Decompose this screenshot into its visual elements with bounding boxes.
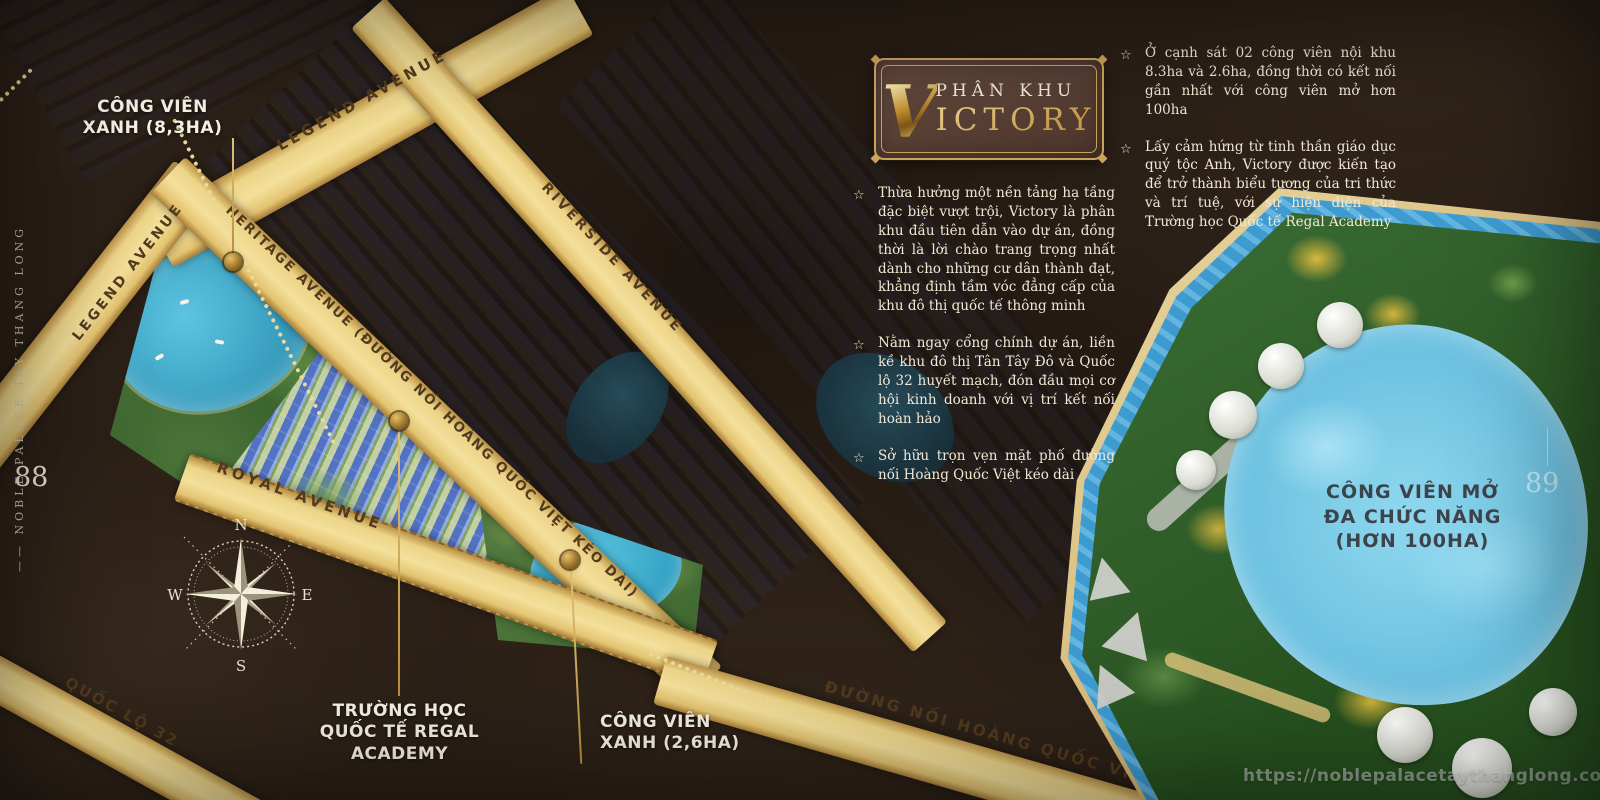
compass-west-label: W [167, 586, 183, 604]
page-number-left: 88 [14, 462, 48, 493]
victory-badge: V PHÂN KHU ICTORY [874, 58, 1104, 160]
map-marker-dot [390, 412, 408, 430]
bullet-item: ☆ Ở cạnh sát 02 công viên nội khu 8.3ha … [1120, 44, 1396, 120]
intro-bullet-list: ☆ Thừa hưởng một nền tảng hạ tầng đặc bi… [853, 184, 1115, 502]
open-park-area: CÔNG VIÊN MỞ ĐA CHỨC NĂNG (HƠN 100HA) [1055, 185, 1600, 800]
bullet-item: ☆ Thừa hưởng một nền tảng hạ tầng đặc bi… [853, 184, 1115, 316]
bullet-text: Sở hữu trọn vẹn mặt phố đường nối Hoàng … [878, 447, 1115, 485]
star-bullet-icon: ☆ [1120, 46, 1134, 120]
green-park-8-3-label: CÔNG VIÊN XANH (8,3HA) [70, 97, 235, 140]
badge-title-initial: V [882, 81, 938, 142]
bullet-item: ☆ Sở hữu trọn vẹn mặt phố đường nối Hoàn… [853, 447, 1115, 485]
bullet-item: ☆ Lấy cảm hứng từ tinh thần giáo dục quý… [1120, 138, 1396, 232]
compass-east-label: E [302, 586, 313, 604]
page-number-right: 89 [1525, 468, 1559, 499]
marker-line-park-8-3 [232, 138, 234, 255]
dome-structure [1209, 391, 1257, 439]
star-bullet-icon: ☆ [1120, 140, 1134, 232]
map-marker-dot [224, 253, 242, 271]
watermark-url: https://noblepalacetaythanglong.com.vn/ [1243, 766, 1600, 786]
star-bullet-icon: ☆ [853, 336, 867, 428]
bullet-text: Nằm ngay cổng chính dự án, liền kề khu đ… [878, 334, 1115, 428]
compass-rose-icon: N E S W [166, 516, 316, 674]
dome-structure [1377, 707, 1433, 763]
badge-kicker: PHÂN KHU [935, 81, 1076, 101]
bullet-text: Thừa hưởng một nền tảng hạ tầng đặc biệt… [878, 184, 1115, 316]
highlight-bullet-list: ☆ Ở cạnh sát 02 công viên nội khu 8.3ha … [1120, 44, 1396, 250]
dome-structure [1529, 688, 1577, 736]
marker-line-school [398, 430, 400, 696]
dome-structure [1317, 302, 1363, 348]
bullet-item: ☆ Nằm ngay cổng chính dự án, liền kề khu… [853, 334, 1115, 428]
star-bullet-icon: ☆ [853, 186, 867, 316]
spine-title: —— NOBLE PALACE TAY THANG LONG [13, 282, 26, 572]
open-park-label: CÔNG VIÊN MỞ ĐA CHỨC NĂNG (HƠN 100HA) [1310, 480, 1515, 554]
bullet-text: Ở cạnh sát 02 công viên nội khu 8.3ha và… [1145, 44, 1396, 120]
green-park-2-6-label: CÔNG VIÊN XANH (2,6HA) [600, 712, 760, 755]
compass-north-label: N [234, 516, 247, 534]
right-edge-divider [1547, 428, 1548, 466]
star-bullet-icon: ☆ [853, 449, 867, 485]
dome-structure [1176, 450, 1216, 490]
badge-title-rest: ICTORY [935, 102, 1096, 138]
map-marker-dot [561, 551, 579, 569]
compass-south-label: S [236, 657, 246, 674]
school-label: TRƯỜNG HỌC QUỐC TẾ REGAL ACADEMY [312, 701, 487, 765]
bullet-text: Lấy cảm hứng từ tinh thần giáo dục quý t… [1145, 138, 1396, 232]
dome-structure [1258, 343, 1304, 389]
brochure-page: LEGEND AVENUE LEGEND AVENUE HERITAGE AVE… [0, 0, 1600, 800]
